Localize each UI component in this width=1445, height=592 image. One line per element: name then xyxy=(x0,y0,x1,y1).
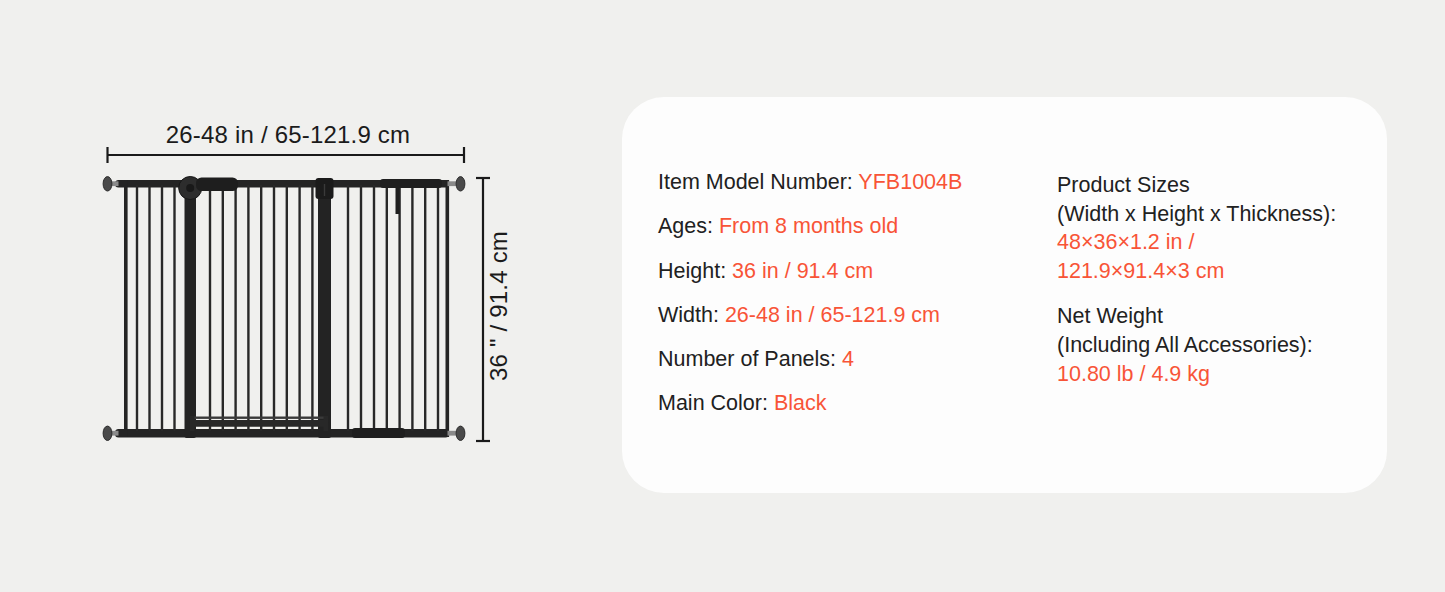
spec-value: Black xyxy=(774,391,827,415)
wall-cap-top-left xyxy=(103,177,118,191)
wall-cap-top-right xyxy=(448,177,465,191)
gate-bars xyxy=(137,185,438,431)
width-dimension-line xyxy=(108,147,465,163)
spec-row-color: Main Color: Black xyxy=(658,392,962,414)
spec-label: Height: xyxy=(658,259,732,283)
spec-label: Main Color: xyxy=(658,391,774,415)
spec-value: 48×36×1.2 in / xyxy=(1057,228,1336,257)
spec-value: 121.9×91.4×3 cm xyxy=(1057,257,1336,286)
spec-value: 26-48 in / 65-121.9 cm xyxy=(725,303,940,327)
spec-label: Net Weight xyxy=(1057,302,1336,331)
spec-row-width: Width: 26-48 in / 65-121.9 cm xyxy=(658,304,962,326)
spec-value: From 8 months old xyxy=(719,214,898,238)
spec-block-product-sizes: Product Sizes (Width x Height x Thicknes… xyxy=(1057,171,1336,285)
spec-label: Item Model Number: xyxy=(658,170,858,194)
spec-label: Width: xyxy=(658,303,725,327)
latch-handle xyxy=(196,178,238,192)
spec-block-net-weight: Net Weight (Including All Accessories): … xyxy=(1057,302,1336,388)
height-dimension-label: 36 " / 91.4 cm xyxy=(485,231,512,381)
latch-post xyxy=(316,178,334,438)
spec-value: 4 xyxy=(842,347,854,371)
spec-label: Number of Panels: xyxy=(658,347,842,371)
spec-row-height: Height: 36 in / 91.4 cm xyxy=(658,260,962,282)
rail-sleeves xyxy=(352,179,442,438)
spec-column-left: Item Model Number: YFB1004B Ages: From 8… xyxy=(658,171,962,437)
wall-cap-bottom-right xyxy=(448,426,465,440)
spec-column-right: Product Sizes (Width x Height x Thicknes… xyxy=(1057,171,1336,405)
spec-row-panels: Number of Panels: 4 xyxy=(658,348,962,370)
spec-label: Product Sizes xyxy=(1057,171,1336,200)
spec-label: (Including All Accessories): xyxy=(1057,331,1336,360)
gate-dimension-diagram: 26-48 in / 65-121.9 cm xyxy=(85,100,525,470)
spec-row-model: Item Model Number: YFB1004B xyxy=(658,171,962,193)
spec-card: Item Model Number: YFB1004B Ages: From 8… xyxy=(622,97,1387,493)
spec-value: YFB1004B xyxy=(858,170,962,194)
spec-value: 36 in / 91.4 cm xyxy=(732,259,873,283)
spec-label: Ages: xyxy=(658,214,719,238)
spec-label: (Width x Height x Thickness): xyxy=(1057,200,1336,229)
door-hinge-post xyxy=(179,177,202,439)
gate-illustration: 26-48 in / 65-121.9 cm xyxy=(85,100,525,470)
width-dimension-label: 26-48 in / 65-121.9 cm xyxy=(166,121,411,148)
product-spec-image: 26-48 in / 65-121.9 cm xyxy=(0,0,1445,592)
wall-cap-bottom-left xyxy=(103,426,118,440)
spec-value: 10.80 lb / 4.9 kg xyxy=(1057,360,1336,389)
spec-row-ages: Ages: From 8 months old xyxy=(658,215,962,237)
